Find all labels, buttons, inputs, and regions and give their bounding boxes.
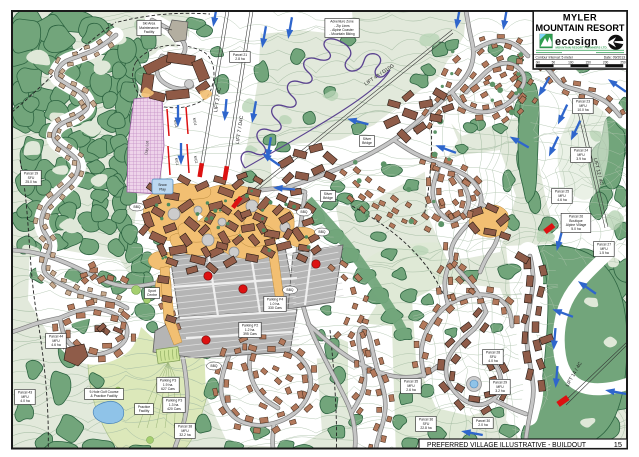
svg-text:BBQ: BBQ [211,364,218,368]
svg-text:200: 200 [603,60,609,64]
svg-text:Play: Play [159,188,166,192]
svg-text:MYLER: MYLER [563,13,597,23]
svg-text:BBQ: BBQ [301,210,308,214]
svg-text:100: 100 [568,60,574,64]
svg-text:4.0 ha: 4.0 ha [20,399,30,403]
svg-text:0m: 0m [536,60,541,64]
svg-text:& Practice Facility: & Practice Facility [91,394,118,398]
svg-text:32.2 ha: 32.2 ha [179,433,190,437]
svg-text:Facility: Facility [144,30,155,34]
svg-text:2.8 ha: 2.8 ha [235,57,245,61]
svg-text:4.0 ha: 4.0 ha [488,359,498,363]
svg-text:Bridge: Bridge [323,196,333,200]
svg-text:Contour Interval: 5 meter: Contour Interval: 5 meter [536,55,574,59]
svg-text:4.6 ha: 4.6 ha [51,343,61,347]
svg-text:2.0 ha: 2.0 ha [478,423,488,427]
svg-text:Bridge: Bridge [362,141,372,145]
svg-text:MOUNTAIN RESORT: MOUNTAIN RESORT [536,23,625,34]
svg-text:150: 150 [586,60,592,64]
svg-text:2.6 ha: 2.6 ha [406,388,416,392]
svg-text:Facility: Facility [139,409,150,413]
svg-text:4.6 ha: 4.6 ha [557,198,567,202]
svg-text:BBQ: BBQ [319,230,326,234]
svg-text:Date: 09/2013: Date: 09/2013 [604,55,625,59]
svg-text:15: 15 [614,440,622,449]
svg-text:5.0 ha: 5.0 ha [571,227,581,231]
svg-text:395 Cars: 395 Cars [243,332,257,336]
svg-text:Centre: Centre [147,293,157,297]
svg-text:MOUNTAIN RESORT PLANNERS LTD.: MOUNTAIN RESORT PLANNERS LTD. [556,46,608,50]
svg-text:250: 250 [620,60,626,64]
svg-text:627 Cars: 627 Cars [161,387,175,391]
svg-text:10.0 ha: 10.0 ha [577,108,588,112]
svg-text:25.0 ha: 25.0 ha [25,180,36,184]
svg-text:Snow: Snow [158,183,167,187]
svg-text:BBQ: BBQ [134,205,141,209]
svg-text:330 Cars: 330 Cars [268,306,282,310]
svg-text:BBQ: BBQ [287,288,294,292]
svg-text:420 Cars: 420 Cars [167,407,181,411]
svg-text:- Mountain Biking: - Mountain Biking [329,32,355,36]
svg-text:3.2 ha: 3.2 ha [495,389,505,393]
svg-text:22.8 ha: 22.8 ha [420,426,431,430]
svg-text:50: 50 [552,60,556,64]
svg-text:3.9 ha: 3.9 ha [576,157,586,161]
svg-text:PREFERRED VILLAGE ILLUSTRATIVE: PREFERRED VILLAGE ILLUSTRATIVE - BUILDOU… [427,440,587,449]
svg-text:1.5 ha: 1.5 ha [599,251,609,255]
